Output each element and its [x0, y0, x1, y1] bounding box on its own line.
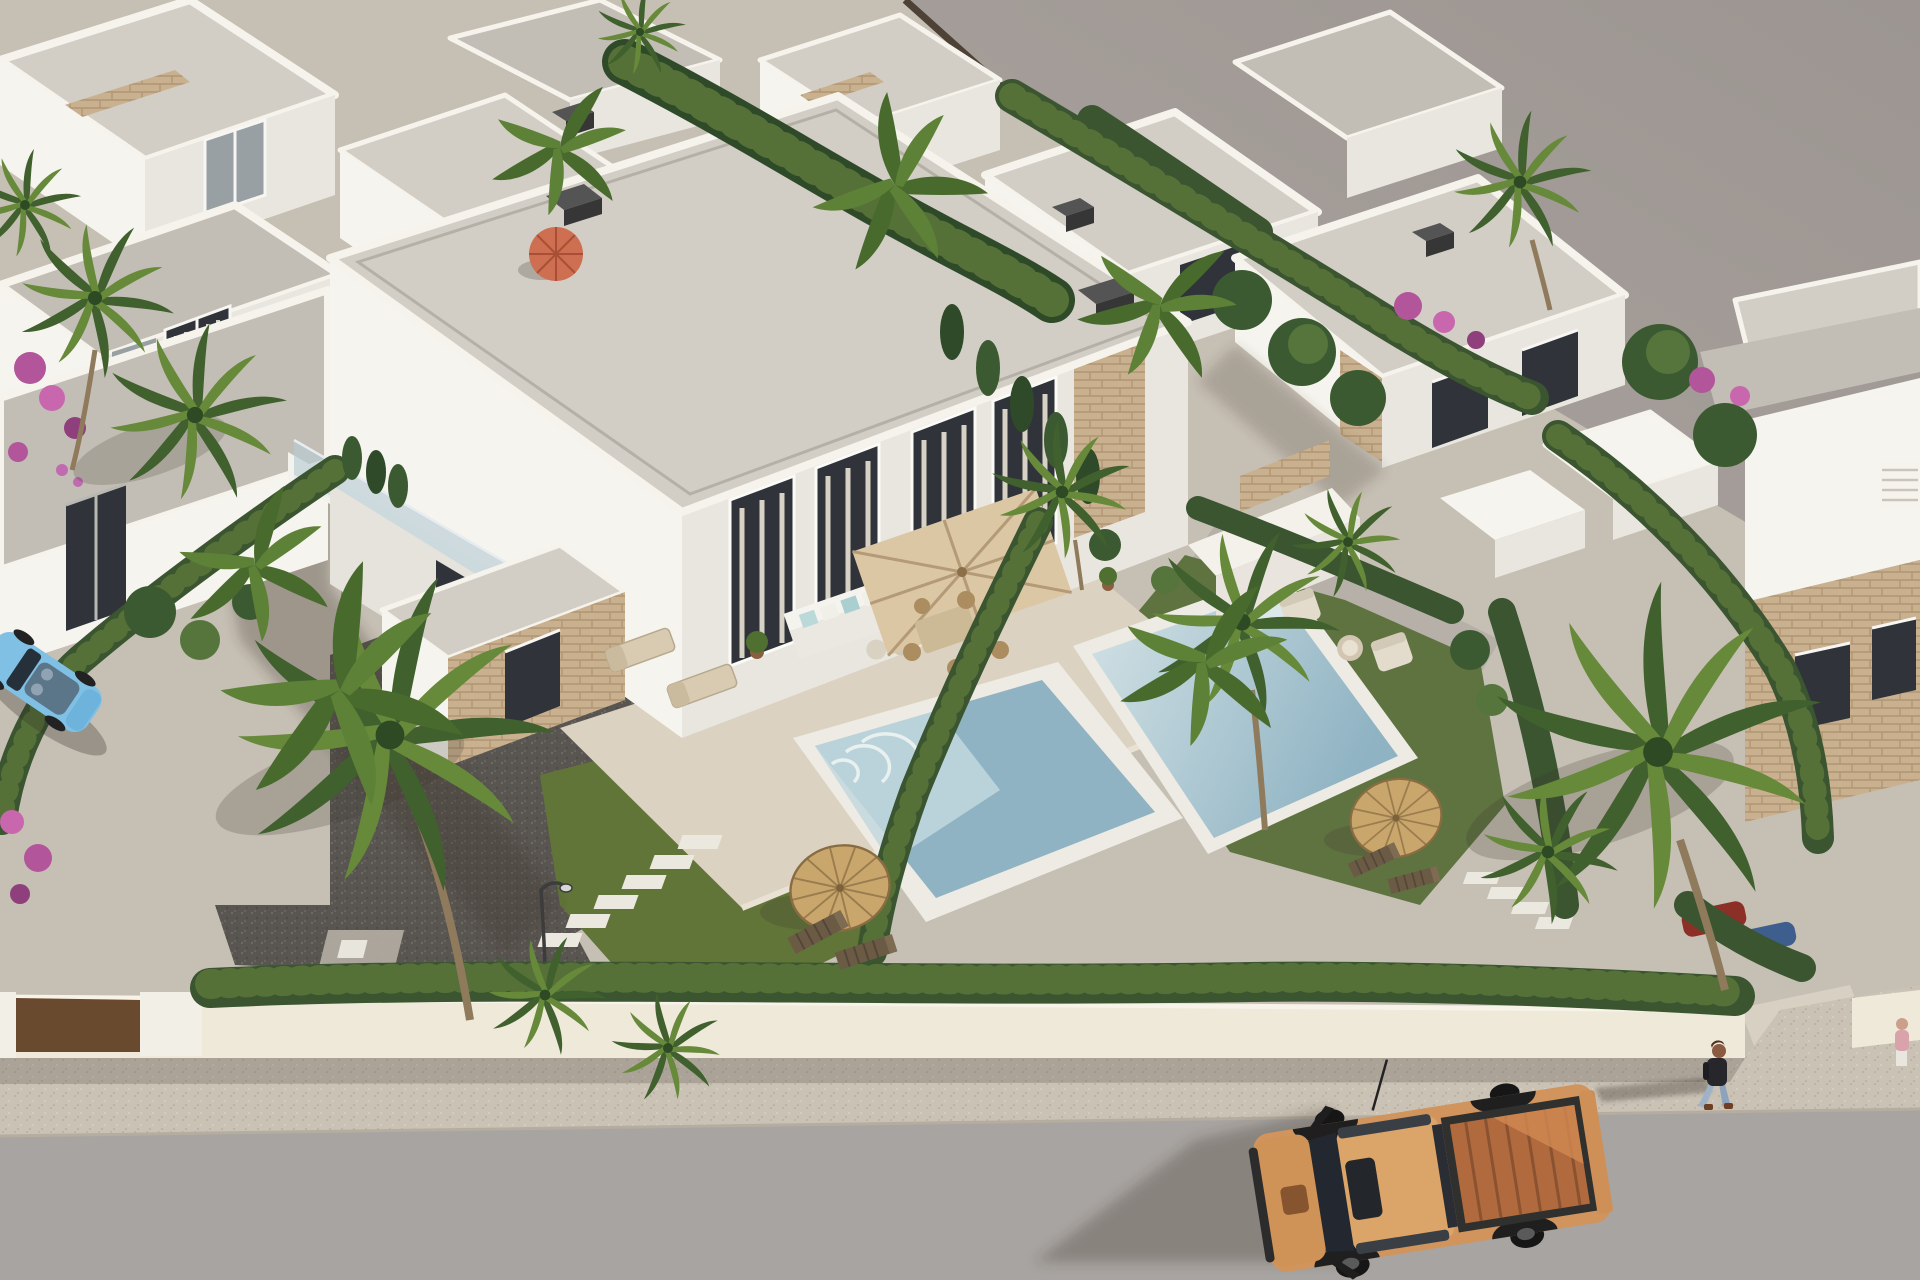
pedestrian-partial: [1895, 1018, 1909, 1066]
villa-development-render: [0, 0, 1920, 1280]
ac-louver: [1880, 462, 1920, 508]
road: [0, 1108, 1920, 1280]
gate-pillar: [140, 992, 202, 1056]
render-canvas: [0, 0, 1920, 1280]
corten-gate: [15, 998, 140, 1052]
wall-shadow: [0, 1058, 1745, 1084]
